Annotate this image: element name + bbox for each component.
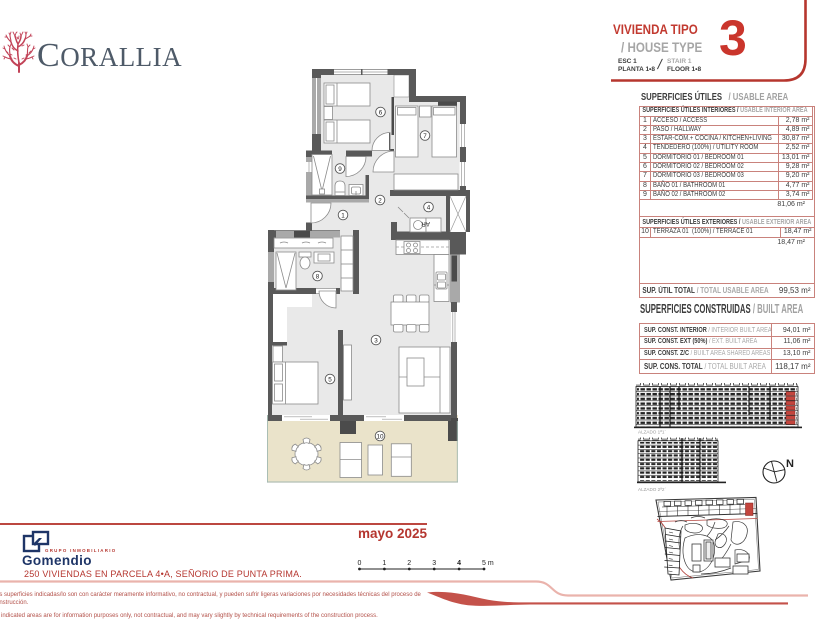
- svg-text:9: 9: [338, 166, 342, 173]
- svg-text:ALZADO 1ª1´: ALZADO 1ª1´: [638, 430, 666, 435]
- svg-text:1: 1: [382, 560, 386, 567]
- svg-text:3: 3: [374, 338, 378, 345]
- svg-text:4: 4: [457, 560, 461, 567]
- svg-text:8: 8: [316, 274, 320, 281]
- svg-text:2: 2: [407, 560, 411, 567]
- svg-text:2: 2: [378, 198, 382, 205]
- svg-text:10: 10: [376, 434, 384, 441]
- svg-text:N: N: [786, 458, 794, 470]
- svg-text:1: 1: [341, 213, 345, 220]
- svg-text:5 m: 5 m: [482, 560, 494, 567]
- svg-text:5: 5: [328, 377, 332, 384]
- svg-text:7: 7: [423, 133, 427, 140]
- svg-text:0: 0: [358, 560, 362, 567]
- svg-text:AR: AR: [421, 220, 430, 227]
- svg-text:3: 3: [432, 560, 436, 567]
- svg-text:6: 6: [379, 110, 383, 117]
- svg-text:4: 4: [427, 205, 431, 212]
